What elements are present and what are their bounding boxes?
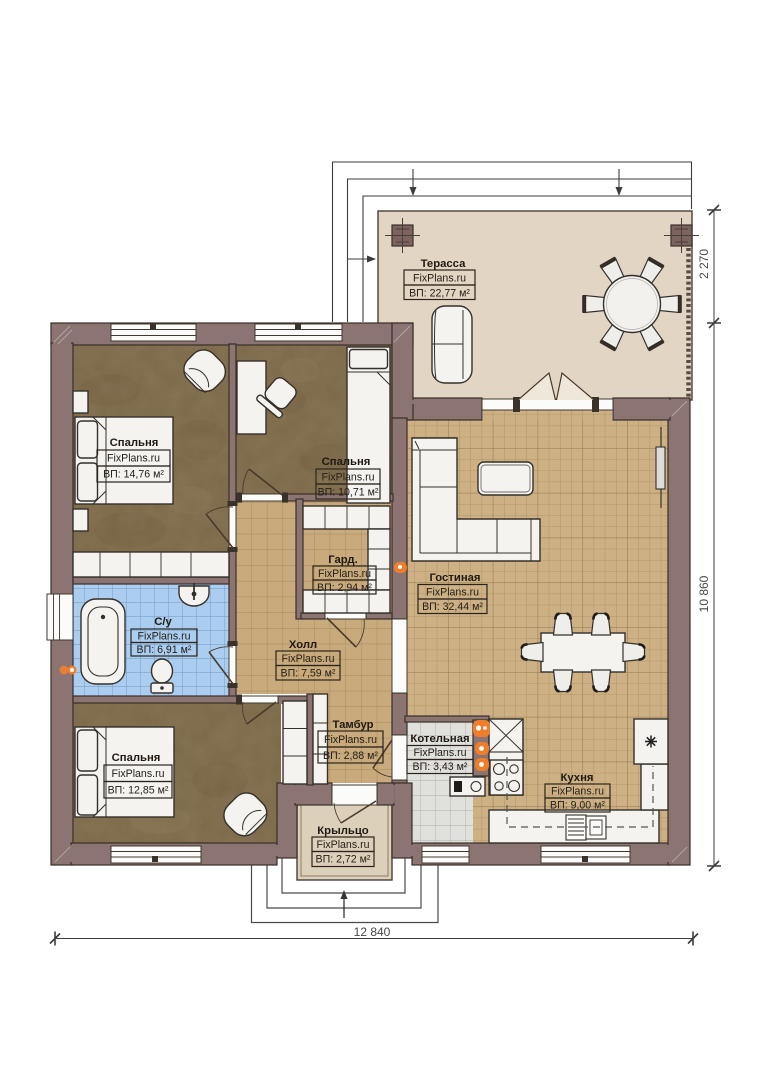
svg-text:Спальня: Спальня — [112, 752, 161, 764]
svg-text:ВП: 2,94 м²: ВП: 2,94 м² — [317, 582, 372, 594]
svg-text:ВП: 7,59 м²: ВП: 7,59 м² — [281, 668, 336, 680]
svg-text:Кухня: Кухня — [560, 772, 593, 784]
svg-text:FixPlans.ru: FixPlans.ru — [317, 839, 370, 851]
svg-text:10 860: 10 860 — [697, 575, 711, 612]
svg-text:Котельная: Котельная — [410, 733, 469, 745]
svg-text:Холл: Холл — [289, 639, 317, 651]
svg-text:12 840: 12 840 — [354, 925, 391, 939]
svg-text:Гостиная: Гостиная — [429, 572, 480, 584]
svg-text:Спальня: Спальня — [110, 437, 159, 449]
svg-text:ВП: 10,71 м²: ВП: 10,71 м² — [318, 487, 379, 499]
svg-text:ВП: 9,00 м²: ВП: 9,00 м² — [550, 800, 605, 812]
svg-text:ВП: 14,76 м²: ВП: 14,76 м² — [103, 469, 164, 481]
svg-text:Крыльцо: Крыльцо — [317, 825, 369, 837]
svg-text:2 270: 2 270 — [697, 249, 711, 279]
svg-text:FixPlans.ru: FixPlans.ru — [282, 653, 335, 665]
svg-text:Терасса: Терасса — [421, 258, 467, 270]
svg-text:ВП: 12,85 м²: ВП: 12,85 м² — [108, 785, 169, 797]
svg-text:FixPlans.ru: FixPlans.ru — [426, 587, 479, 599]
svg-text:FixPlans.ru: FixPlans.ru — [413, 273, 466, 285]
svg-text:Гард.: Гард. — [328, 554, 357, 566]
svg-text:FixPlans.ru: FixPlans.ru — [318, 568, 371, 580]
svg-text:ВП: 6,91 м²: ВП: 6,91 м² — [137, 644, 192, 656]
svg-text:FixPlans.ru: FixPlans.ru — [414, 747, 467, 759]
svg-text:FixPlans.ru: FixPlans.ru — [551, 786, 604, 798]
svg-text:Спальня: Спальня — [322, 456, 371, 468]
svg-text:ВП: 22,77 м²: ВП: 22,77 м² — [409, 288, 470, 300]
svg-text:FixPlans.ru: FixPlans.ru — [112, 768, 165, 780]
svg-text:ВП: 3,43 м²: ВП: 3,43 м² — [413, 761, 468, 773]
svg-text:FixPlans.ru: FixPlans.ru — [138, 631, 191, 643]
svg-text:FixPlans.ru: FixPlans.ru — [107, 453, 160, 465]
svg-text:Тамбур: Тамбур — [333, 719, 374, 731]
svg-text:ВП: 2,72 м²: ВП: 2,72 м² — [316, 854, 371, 866]
svg-text:FixPlans.ru: FixPlans.ru — [324, 734, 377, 746]
svg-text:С/у: С/у — [154, 616, 172, 628]
svg-text:ВП: 2,88 м²: ВП: 2,88 м² — [323, 750, 378, 762]
svg-text:FixPlans.ru: FixPlans.ru — [322, 472, 375, 484]
svg-text:ВП: 32,44 м²: ВП: 32,44 м² — [422, 601, 483, 613]
